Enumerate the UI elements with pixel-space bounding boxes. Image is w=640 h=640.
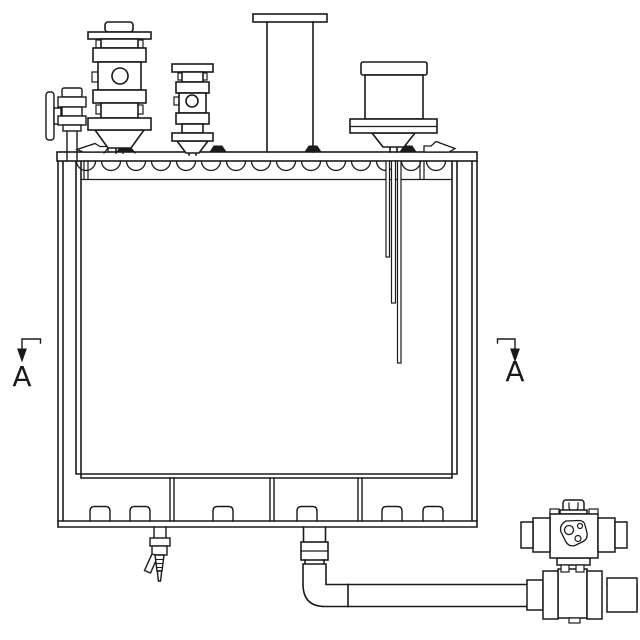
lid-latch-left	[77, 144, 108, 153]
fitting-body	[62, 107, 82, 116]
filter-canister	[350, 62, 437, 152]
lid-scalloped-gasket	[77, 161, 446, 171]
outlet-drop-pipe	[304, 527, 326, 542]
side-tab	[92, 72, 98, 82]
actuator-cylinder-right	[598, 518, 615, 552]
actuated-ball-valve	[521, 500, 637, 623]
bracket-bolt	[561, 565, 569, 572]
fitting-band	[58, 97, 86, 107]
valve-collar	[93, 48, 146, 62]
bracket-bolt	[576, 565, 584, 572]
valve-skirt	[95, 130, 144, 148]
valve-body-tab	[569, 618, 580, 623]
actuator-cap-right	[615, 522, 627, 548]
tank-assembly-drawing: A A	[0, 0, 640, 640]
relief-valve-large	[88, 22, 151, 153]
support-pad	[213, 507, 233, 522]
outlet-piping	[301, 527, 527, 607]
riser-pipe-walls	[267, 22, 313, 152]
fitting-cap	[62, 88, 82, 97]
tank-shell	[58, 161, 477, 527]
valve-skirt	[177, 141, 208, 153]
canister-skirt	[372, 133, 415, 147]
valve-neck	[101, 103, 138, 118]
support-pad	[90, 507, 110, 522]
face-port-small	[575, 536, 581, 542]
valve-neck	[182, 124, 203, 133]
canister-body	[365, 75, 423, 119]
support-pad	[130, 507, 150, 522]
dip-tubes	[386, 161, 401, 363]
valve-collar	[176, 82, 209, 93]
support-pad	[297, 507, 317, 522]
technical-drawing-canvas: A A	[0, 0, 640, 640]
actuator-cap-left	[521, 522, 533, 548]
tank-lid	[57, 152, 477, 179]
valve-neck	[101, 39, 138, 48]
fitting-collar	[63, 125, 81, 131]
section-marker-left: A	[12, 339, 40, 393]
valve-bottom-flange	[88, 118, 151, 130]
section-cut-line	[22, 339, 41, 349]
tank-inner-wall	[81, 161, 452, 478]
tank-outer-wall-inner-line	[58, 161, 477, 521]
support-pad	[382, 507, 402, 522]
fitting-band	[58, 116, 86, 125]
section-cut-line	[498, 339, 516, 349]
dip-tube-long	[398, 161, 402, 363]
clamp-nub-icon	[210, 146, 226, 152]
valve-top-cap	[105, 22, 133, 32]
riser-pipe	[253, 14, 327, 152]
union-adapter-right	[607, 578, 637, 612]
drain-tip	[157, 571, 161, 581]
valve-neck	[182, 72, 203, 82]
section-marker-right: A	[498, 339, 525, 388]
horizontal-pipe	[348, 585, 527, 607]
actuator-bracket	[557, 558, 590, 565]
union-adapter-left	[527, 580, 543, 610]
valve-bottom-flange	[172, 133, 213, 141]
riser-top-flange	[253, 14, 327, 22]
lid-latch-right	[424, 142, 455, 153]
pipe-elbow	[303, 564, 348, 607]
union-nut-left	[543, 571, 558, 619]
ball-valve-body	[558, 569, 587, 618]
side-flange	[46, 92, 54, 140]
section-label-left: A	[12, 360, 31, 393]
actuator-cylinder-left	[533, 518, 550, 552]
drain-nipple	[154, 527, 166, 538]
valve-top-flange	[88, 32, 151, 39]
bay-dividers	[170, 478, 362, 521]
valve-port	[112, 68, 128, 84]
drain-body	[152, 546, 167, 555]
tank-bottom-bays	[90, 478, 443, 521]
dip-tube-medium	[392, 161, 396, 303]
tank-outer-wall	[58, 161, 477, 527]
canister-top-rim	[361, 62, 427, 75]
union-nut-right	[587, 571, 602, 619]
relief-valve-small	[172, 64, 213, 155]
drain-coupling	[150, 538, 170, 546]
support-pad	[423, 507, 443, 522]
face-port-small	[578, 524, 583, 529]
dip-tube-short	[386, 161, 390, 257]
valve-port	[186, 95, 198, 107]
lid-band	[57, 152, 477, 161]
drain-valve	[145, 527, 171, 581]
section-label-right: A	[505, 355, 524, 388]
face-port-large	[565, 526, 574, 535]
valve-collar	[176, 113, 209, 124]
valve-collar	[93, 90, 146, 103]
valve-top-flange	[172, 64, 213, 72]
